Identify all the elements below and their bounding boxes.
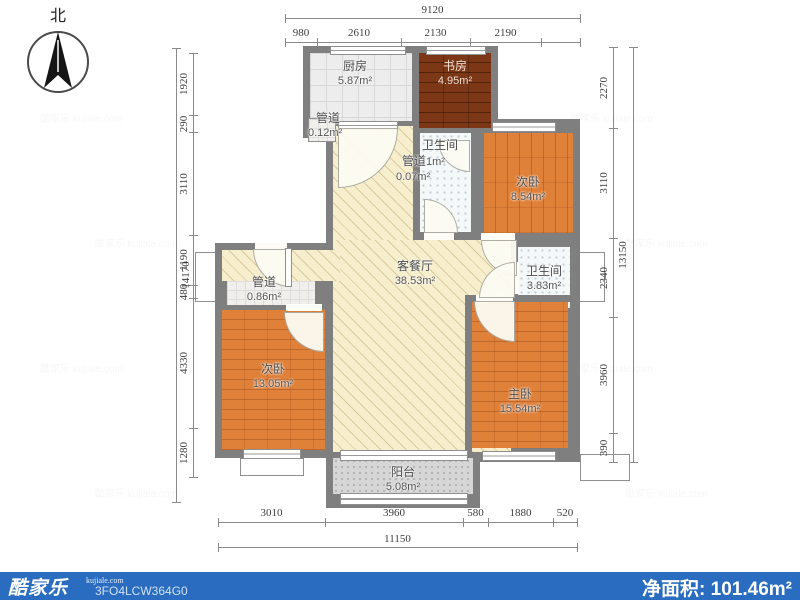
balcony-label: 阳台 5.08m² xyxy=(353,464,453,495)
dim-tick xyxy=(285,14,286,23)
dim-tick xyxy=(172,502,181,503)
dim-tick xyxy=(541,38,542,47)
net-area-value: 101.46m² xyxy=(711,579,792,600)
dim-tick xyxy=(189,53,198,54)
watermark-text: 酷家乐 kujiale.com xyxy=(95,485,178,500)
dim-total-line-left xyxy=(176,48,177,502)
dim-seg-label: 2610 xyxy=(348,27,370,39)
study-window xyxy=(426,46,486,55)
dim-seg-label: 3110 xyxy=(178,173,190,195)
dim-tick xyxy=(463,518,464,527)
dim-seg-label: 1880 xyxy=(510,507,532,519)
bathroom-top-door-opening xyxy=(424,232,454,240)
bedroom-left-window xyxy=(243,449,301,459)
brand-logo: 酷家乐 xyxy=(8,573,68,600)
dim-seg-label: 1280 xyxy=(178,442,190,464)
duct-inline-label: 管道1m² xyxy=(402,153,482,170)
dim-seg-label: 2340 xyxy=(598,267,610,289)
room-area: 5.08m² xyxy=(353,480,453,495)
north-indicator: 北 xyxy=(10,2,106,103)
dim-total-line-right xyxy=(633,47,634,462)
room-name: 次卧 xyxy=(478,174,578,190)
dim-seg-label: 980 xyxy=(293,27,310,39)
dim-tick xyxy=(629,462,638,463)
dim-seg-label: 1920 xyxy=(178,73,190,95)
dim-seg-label: 580 xyxy=(467,507,484,519)
dim-tick xyxy=(189,235,198,236)
room-area: 3.83m² xyxy=(494,279,594,294)
bathroom-top-label: 卫生间 管道1m² 0.07m² xyxy=(396,137,482,185)
room-area: 13.05m² xyxy=(223,377,323,392)
dim-tick xyxy=(609,128,618,129)
dim-seg-label: 4330 xyxy=(178,352,190,374)
dim-seg-line-bottom xyxy=(218,522,577,523)
room-area: 15.54m² xyxy=(470,402,570,417)
footer-bar: 酷家乐 kujiale.com 3FO4LCW364G0 净面积: 101.46… xyxy=(0,572,800,600)
room-name: 厨房 xyxy=(305,58,405,74)
bottom-right-platform xyxy=(580,454,630,481)
watermark-text: 酷家乐 kujiale.com xyxy=(40,360,123,375)
bottom-left-platform xyxy=(240,458,304,476)
room-name: 卫生间 xyxy=(422,137,482,153)
dim-tick xyxy=(577,518,578,527)
room-name: 管道 xyxy=(316,110,376,126)
dim-total-label-top: 9120 xyxy=(422,4,444,16)
bedroom-small-label: 次卧 8.54m² xyxy=(478,174,578,205)
dim-seg-line-right xyxy=(613,47,614,462)
dim-tick xyxy=(609,462,618,463)
balcony-slide-door xyxy=(340,450,468,461)
dim-seg-line-top xyxy=(285,42,580,43)
dim-tick xyxy=(218,543,219,552)
master-window xyxy=(482,451,556,461)
dim-tick xyxy=(580,14,581,23)
dim-seg-label: 2270 xyxy=(598,77,610,99)
watermark-text: 酷家乐 kujiale.com xyxy=(625,235,708,250)
dim-total-label-left: 14170 xyxy=(180,261,192,289)
duct-left-label: 管道 0.86m² xyxy=(214,274,314,305)
dim-tick xyxy=(609,317,618,318)
dim-tick xyxy=(609,433,618,434)
room-name: 客餐厅 xyxy=(365,258,465,274)
dim-tick xyxy=(189,298,198,299)
room-name: 次卧 xyxy=(223,361,323,377)
north-label: 北 xyxy=(10,2,106,26)
net-area: 净面积: 101.46m² xyxy=(642,574,792,601)
kitchen-label: 厨房 5.87m² xyxy=(305,58,405,89)
dim-tick xyxy=(488,518,489,527)
duct-name: 管道 xyxy=(402,154,426,168)
dim-tick xyxy=(285,38,286,47)
master-left-wall xyxy=(465,295,472,455)
dim-total-label-right: 13150 xyxy=(617,241,629,269)
master-label: 主卧 15.54m² xyxy=(470,386,570,417)
plan-code: 3FO4LCW364G0 xyxy=(95,584,188,598)
room-name: 卫生间 xyxy=(494,263,594,279)
dim-seg-label: 520 xyxy=(557,507,574,519)
watermark-text: 酷家乐 kujiale.com xyxy=(40,110,123,125)
dim-tick xyxy=(189,115,198,116)
dim-seg-label: 3010 xyxy=(261,507,283,519)
dim-seg-line-left xyxy=(193,53,194,477)
room-name: 主卧 xyxy=(470,386,570,402)
dim-tick xyxy=(629,47,638,48)
dim-tick xyxy=(172,48,181,49)
dim-tick xyxy=(317,38,318,47)
room-area: 38.53m² xyxy=(365,274,465,289)
bedroom-small-window xyxy=(492,122,556,132)
room-area: 4.95m² xyxy=(405,74,505,89)
brand-block: 酷家乐 kujiale.com 3FO4LCW364G0 xyxy=(0,572,230,600)
room-name: 书房 xyxy=(405,58,505,74)
dim-tick xyxy=(189,477,198,478)
dim-seg-label: 290 xyxy=(178,115,190,132)
compass-icon xyxy=(22,26,94,98)
dim-seg-label: 3110 xyxy=(598,172,610,194)
bathroom-area-fragment: 1m² xyxy=(426,156,445,168)
watermark-text: 酷家乐 kujiale.com xyxy=(625,485,708,500)
dim-tick xyxy=(609,47,618,48)
duct-area: 0.07m² xyxy=(396,170,482,185)
dim-tick xyxy=(553,518,554,527)
dim-total-line-bottom xyxy=(218,547,577,548)
watermark-text: 酷家乐 kujiale.com xyxy=(570,110,653,125)
dim-total-line-top xyxy=(285,18,580,19)
living-label: 客餐厅 38.53m² xyxy=(365,258,465,289)
dim-tick xyxy=(609,238,618,239)
dim-tick xyxy=(189,428,198,429)
watermark-text: 酷家乐 kujiale.com xyxy=(570,360,653,375)
net-area-label: 净面积: xyxy=(642,579,705,600)
room-area: 5.87m² xyxy=(305,74,405,89)
dim-tick xyxy=(189,132,198,133)
dim-seg-label: 390 xyxy=(598,439,610,456)
watermark-text: 酷家乐 kujiale.com xyxy=(95,235,178,250)
dim-tick xyxy=(218,518,219,527)
dim-tick xyxy=(577,543,578,552)
room-area: 8.54m² xyxy=(478,190,578,205)
dim-tick xyxy=(580,38,581,47)
bedroom-left-door-opening xyxy=(286,304,322,311)
dim-seg-label: 3960 xyxy=(598,364,610,386)
study-label: 书房 4.95m² xyxy=(405,58,505,89)
dim-tick xyxy=(325,518,326,527)
room-name: 阳台 xyxy=(353,464,453,480)
bedroom-left-label: 次卧 13.05m² xyxy=(223,361,323,392)
kitchen-window xyxy=(330,46,406,55)
room-name: 管道 xyxy=(214,274,314,290)
dim-seg-label: 3960 xyxy=(383,507,405,519)
dim-seg-label: 2130 xyxy=(425,27,447,39)
room-area: 0.86m² xyxy=(214,290,314,305)
bathroom-right-label: 卫生间 3.83m² xyxy=(494,263,594,294)
duct-small-label: 管道 0.12m² xyxy=(300,110,376,141)
room-area: 0.12m² xyxy=(308,126,376,141)
dim-seg-label: 2190 xyxy=(495,27,517,39)
dim-total-label-bottom: 11150 xyxy=(384,533,411,545)
